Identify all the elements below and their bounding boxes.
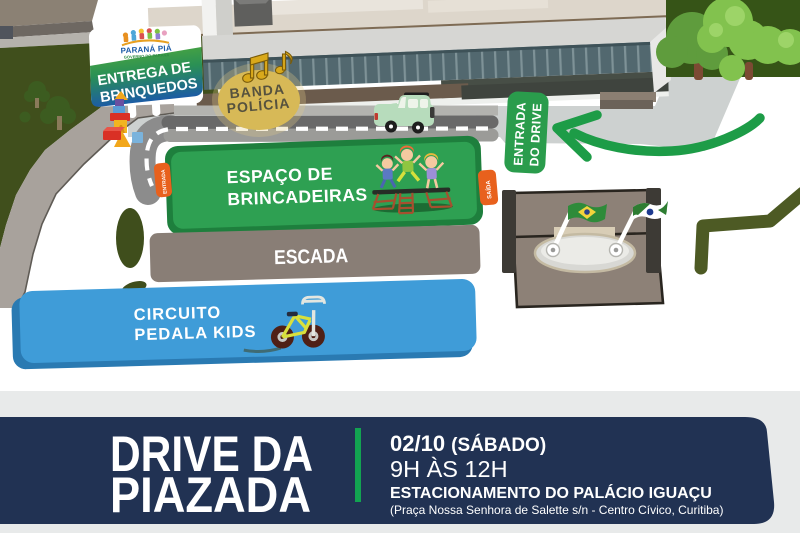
svg-text:ESCADA: ESCADA [274, 245, 349, 269]
svg-text:9H ÀS 12H: 9H ÀS 12H [390, 456, 508, 482]
svg-text:(Praça Nossa Senhora de Salett: (Praça Nossa Senhora de Salette s/n - Ce… [390, 503, 723, 517]
svg-text:CIRCUITO: CIRCUITO [134, 304, 222, 324]
svg-text:ESTACIONAMENTO DO PALÁCIO IGUA: ESTACIONAMENTO DO PALÁCIO IGUAÇU [390, 483, 712, 502]
svg-text:PEDALA KIDS: PEDALA KIDS [134, 323, 257, 344]
svg-text:PIAZADA: PIAZADA [110, 467, 311, 523]
svg-text:02/10 (SÁBADO): 02/10 (SÁBADO) [390, 431, 546, 456]
svg-text:ESPAÇO DE: ESPAÇO DE [226, 164, 333, 188]
